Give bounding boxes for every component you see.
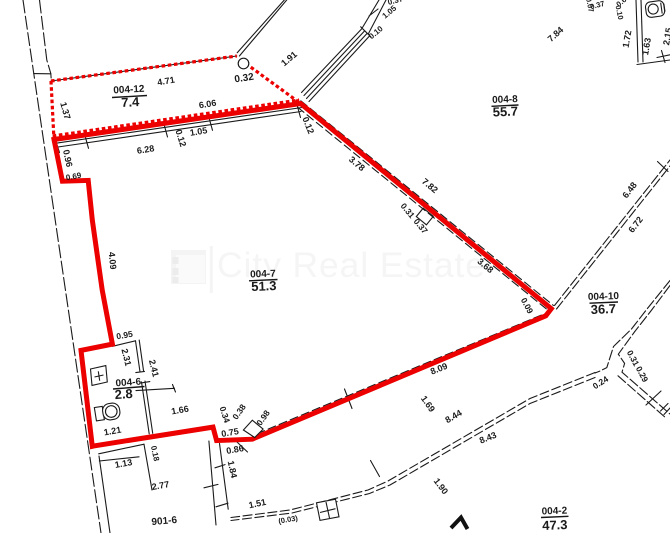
svg-text:4.09: 4.09 [107,251,119,269]
svg-text:004-2: 004-2 [541,506,567,518]
svg-text:47.3: 47.3 [542,517,568,533]
svg-text:901-6: 901-6 [151,515,178,528]
